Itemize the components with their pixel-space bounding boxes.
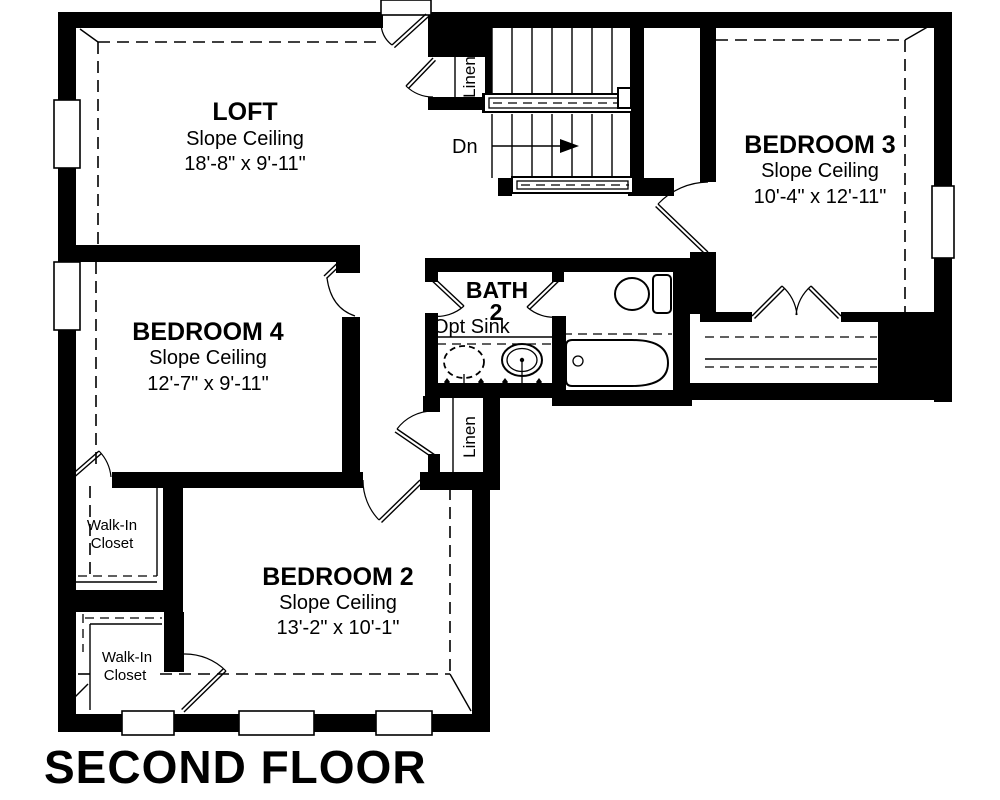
toilet-icon	[615, 275, 671, 313]
stairs	[484, 28, 633, 193]
stair-treads-upper	[492, 28, 612, 93]
bedroom4-name: BEDROOM 4	[132, 318, 284, 346]
wic-lower-line2: Closet	[104, 667, 147, 684]
stair-newel-post	[618, 88, 631, 108]
bedroom3-ceiling: Slope Ceiling	[761, 160, 879, 182]
loft-name: LOFT	[212, 98, 277, 126]
bedroom4-ceiling: Slope Ceiling	[149, 347, 267, 369]
bath2-opt-sink-label: Opt Sink	[433, 316, 511, 338]
bedroom4-label: BEDROOM 4 Slope Ceiling 12'-7" x 9'-11"	[132, 318, 284, 395]
loft-dormer-window	[381, 0, 431, 15]
vanity-counter	[433, 337, 552, 344]
bedroom2-dims: 13'-2" x 10'-1"	[276, 617, 399, 639]
exterior-walls	[58, 12, 952, 732]
bedroom3-name: BEDROOM 3	[744, 131, 895, 159]
wic-upper-line2: Closet	[91, 535, 134, 552]
bedroom2-label: BEDROOM 2 Slope Ceiling 13'-2" x 10'-1"	[262, 563, 413, 639]
linen-lower-door	[395, 411, 435, 458]
bedroom3-label: BEDROOM 3 Slope Ceiling 10'-4" x 12'-11"	[744, 131, 895, 208]
bedroom2-window-1	[122, 711, 174, 735]
loft-ceiling: Slope Ceiling	[186, 128, 304, 150]
stair-railing-bottom	[512, 177, 633, 193]
floor-title: SECOND FLOOR	[44, 741, 427, 793]
room-labels: LOFT Slope Ceiling 18'-8" x 9'-11" BEDRO…	[87, 56, 896, 684]
stair-railing-mid	[484, 94, 632, 112]
bedroom3-window	[932, 186, 954, 258]
loft-window	[54, 100, 80, 168]
sink-icon	[502, 344, 542, 386]
linen-upper-label: Linen	[460, 56, 479, 98]
bathtub-icon	[563, 334, 672, 386]
bedroom4-dims: 12'-7" x 9'-11"	[147, 373, 269, 395]
linen-lower-label: Linen	[460, 416, 479, 458]
tub-room-door	[527, 277, 560, 317]
bedroom2-window-3	[376, 711, 432, 735]
stairs-dn-label: Dn	[452, 136, 478, 158]
bath2-label: BATH 2 Opt Sink	[433, 277, 528, 338]
bedroom2-window-2	[239, 711, 314, 735]
floor-plan-drawing: LOFT Slope Ceiling 18'-8" x 9'-11" BEDRO…	[0, 0, 1000, 800]
wic-upper-line1: Walk-In	[87, 517, 137, 534]
bedroom2-door	[363, 480, 423, 523]
walk-in-closet-lower-door	[182, 654, 226, 712]
bedroom3-dims: 10'-4" x 12'-11"	[754, 186, 887, 208]
walk-in-closet-lower-label: Walk-In Closet	[102, 649, 152, 684]
bedroom2-ceiling: Slope Ceiling	[279, 592, 397, 614]
bedroom3-closet-double-doors	[752, 286, 841, 319]
bedroom4-window	[54, 262, 80, 330]
walk-in-closet-upper-label: Walk-In Closet	[87, 517, 137, 552]
loft-dormer-casement-window	[381, 14, 428, 48]
bath-entry-door	[430, 276, 464, 316]
stairs-down-arrow	[492, 139, 579, 153]
arrow-head-icon	[560, 139, 579, 153]
floor-plan-page: LOFT Slope Ceiling 18'-8" x 9'-11" BEDRO…	[0, 0, 1000, 800]
linen-upper-door	[406, 58, 436, 97]
bedroom2-name: BEDROOM 2	[262, 563, 413, 591]
wic-lower-line1: Walk-In	[102, 649, 152, 666]
bedroom3-closet-shelves	[705, 337, 877, 367]
optional-sink-icon	[444, 346, 484, 386]
loft-dims: 18'-8" x 9'-11"	[184, 153, 306, 175]
loft-label: LOFT Slope Ceiling 18'-8" x 9'-11"	[184, 98, 306, 175]
